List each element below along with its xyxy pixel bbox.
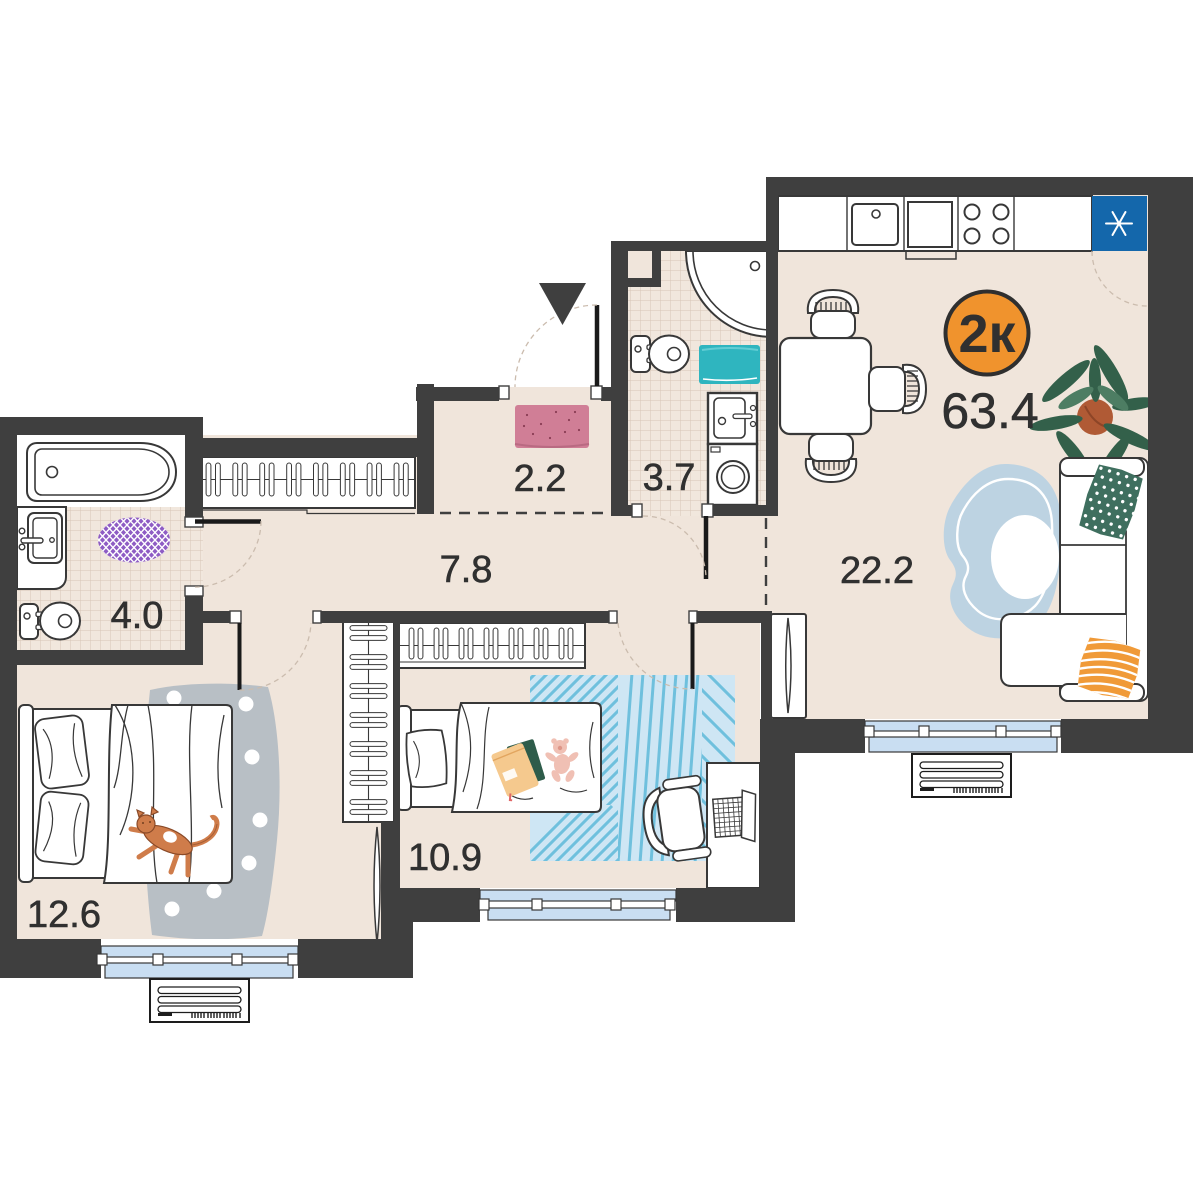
svg-text:2.2: 2.2 — [514, 458, 567, 500]
svg-text:12.6: 12.6 — [27, 894, 101, 936]
svg-text:7.8: 7.8 — [440, 549, 493, 591]
svg-text:10.9: 10.9 — [408, 837, 482, 879]
svg-text:3.7: 3.7 — [643, 457, 696, 499]
svg-text:22.2: 22.2 — [840, 550, 914, 592]
svg-text:4.0: 4.0 — [111, 595, 164, 637]
svg-text:2к: 2к — [958, 304, 1016, 364]
svg-text:63.4: 63.4 — [941, 383, 1038, 439]
